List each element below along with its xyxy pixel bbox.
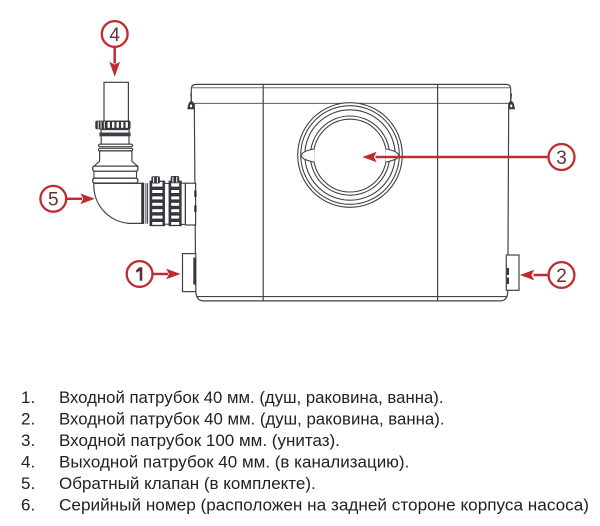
svg-text:6.: 6. (21, 496, 35, 515)
svg-text:4: 4 (109, 25, 120, 46)
svg-text:Входной патрубок 100 мм. (унит: Входной патрубок 100 мм. (унитаз). (59, 431, 340, 450)
svg-text:2.: 2. (21, 410, 35, 429)
svg-text:Серийный номер (расположен на: Серийный номер (расположен на задней сто… (59, 496, 589, 515)
svg-text:5: 5 (48, 190, 59, 211)
svg-text:5.: 5. (21, 474, 35, 493)
svg-text:Обратный клапан (в комплекте).: Обратный клапан (в комплекте). (59, 474, 316, 493)
svg-text:Входной патрубок 40 мм. (душ,: Входной патрубок 40 мм. (душ, раковина, … (59, 410, 445, 429)
svg-text:3: 3 (556, 148, 567, 169)
svg-text:2: 2 (556, 266, 567, 287)
svg-text:4.: 4. (21, 453, 35, 472)
svg-text:Входной патрубок 40 мм. (душ,: Входной патрубок 40 мм. (душ, раковина, … (59, 388, 444, 407)
svg-text:3.: 3. (21, 431, 35, 450)
svg-text:Выходной патрубок 40 мм. (в ка: Выходной патрубок 40 мм. (в канализацию)… (59, 453, 409, 472)
svg-text:1.: 1. (21, 388, 35, 407)
